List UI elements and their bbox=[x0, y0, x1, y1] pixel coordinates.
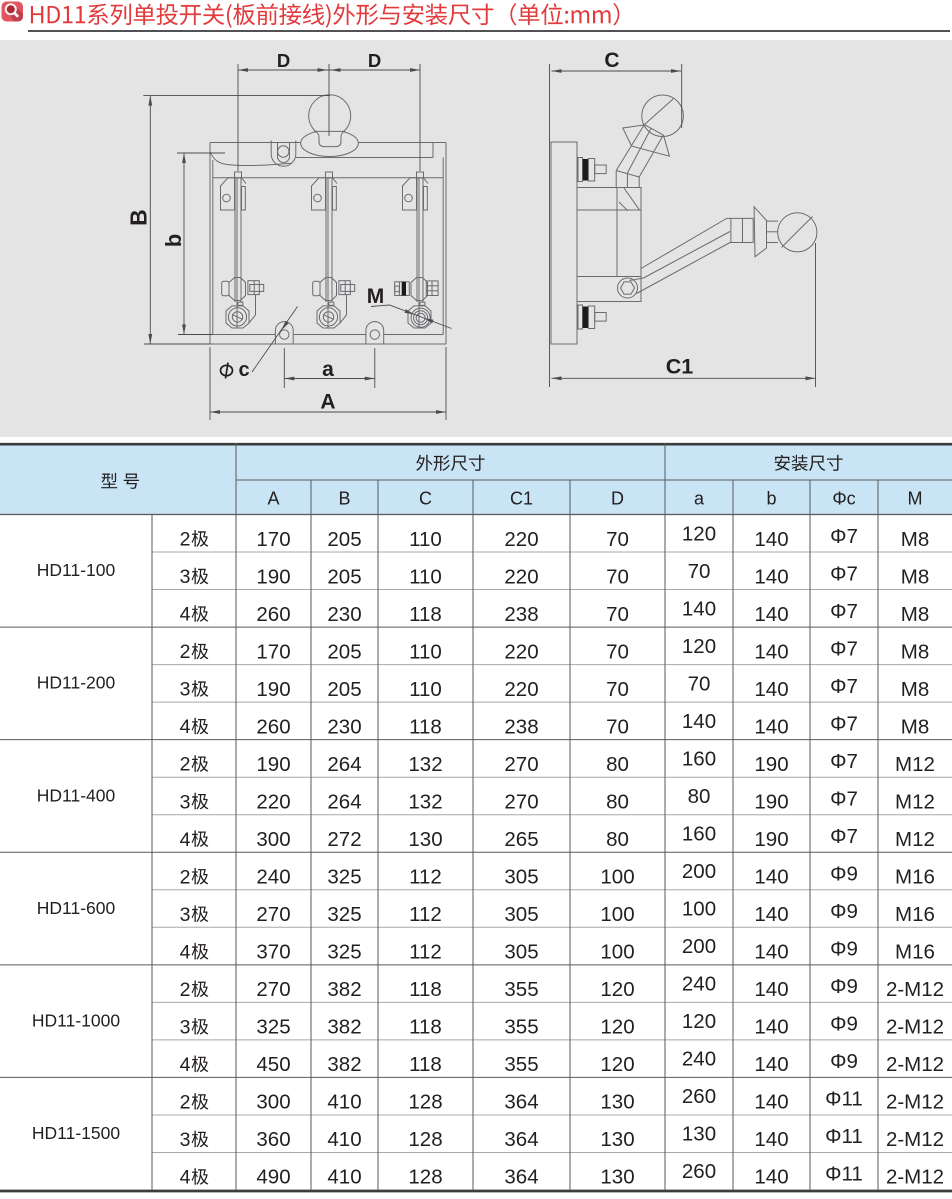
svg-text:Φ7: Φ7 bbox=[830, 525, 858, 548]
svg-text:a: a bbox=[322, 358, 334, 381]
svg-text:240: 240 bbox=[256, 866, 290, 889]
svg-text:M12: M12 bbox=[895, 790, 935, 813]
svg-text:130: 130 bbox=[600, 1091, 634, 1114]
svg-text:200: 200 bbox=[682, 860, 716, 883]
svg-text:205: 205 bbox=[327, 528, 361, 551]
svg-text:100: 100 bbox=[600, 903, 634, 926]
svg-text:HD11-1500: HD11-1500 bbox=[32, 1123, 120, 1143]
svg-text:Φ7: Φ7 bbox=[830, 712, 858, 735]
svg-text:325: 325 bbox=[327, 941, 361, 964]
svg-text:260: 260 bbox=[256, 715, 290, 738]
svg-text:D: D bbox=[277, 50, 290, 71]
svg-text:70: 70 bbox=[606, 715, 629, 738]
svg-text:130: 130 bbox=[600, 1166, 634, 1189]
svg-text:M16: M16 bbox=[895, 903, 935, 926]
svg-text:C1: C1 bbox=[666, 355, 694, 379]
svg-text:272: 272 bbox=[327, 828, 361, 851]
svg-text:70: 70 bbox=[606, 678, 629, 701]
svg-text:70: 70 bbox=[688, 672, 711, 695]
svg-text:Φ7: Φ7 bbox=[830, 637, 858, 660]
svg-text:190: 190 bbox=[754, 753, 788, 776]
svg-text:140: 140 bbox=[682, 710, 716, 733]
svg-text:120: 120 bbox=[682, 635, 716, 658]
svg-text:2-M12: 2-M12 bbox=[886, 1091, 944, 1114]
svg-text:220: 220 bbox=[504, 565, 538, 588]
svg-text:140: 140 bbox=[754, 715, 788, 738]
svg-text:300: 300 bbox=[256, 828, 290, 851]
svg-text:220: 220 bbox=[504, 678, 538, 701]
svg-text:4: 4 bbox=[180, 604, 191, 626]
svg-text:270: 270 bbox=[256, 978, 290, 1001]
svg-text:118: 118 bbox=[409, 978, 442, 1001]
svg-text:2: 2 bbox=[180, 754, 191, 776]
svg-text:120: 120 bbox=[600, 1016, 634, 1039]
svg-text:112: 112 bbox=[409, 903, 442, 926]
svg-text:Φ7: Φ7 bbox=[830, 787, 858, 810]
svg-text:b: b bbox=[766, 489, 776, 509]
svg-text:HD11-400: HD11-400 bbox=[37, 785, 116, 805]
svg-text:B: B bbox=[126, 209, 152, 226]
svg-text:110: 110 bbox=[409, 565, 442, 588]
svg-text:70: 70 bbox=[606, 603, 629, 626]
svg-text:M: M bbox=[367, 285, 385, 308]
svg-text:130: 130 bbox=[408, 828, 442, 851]
svg-text:M: M bbox=[908, 489, 923, 509]
svg-text:HD11-100: HD11-100 bbox=[37, 560, 116, 580]
svg-text:132: 132 bbox=[408, 790, 442, 813]
svg-text:B: B bbox=[338, 489, 350, 509]
svg-text:Φ9: Φ9 bbox=[830, 1050, 858, 1073]
svg-text:230: 230 bbox=[327, 603, 361, 626]
svg-text:325: 325 bbox=[256, 1016, 290, 1039]
svg-text:80: 80 bbox=[606, 753, 629, 776]
svg-text:140: 140 bbox=[754, 941, 788, 964]
svg-text:4: 4 bbox=[180, 1054, 191, 1076]
svg-text:112: 112 bbox=[409, 866, 442, 889]
svg-text:HD11-600: HD11-600 bbox=[37, 898, 116, 918]
svg-text:140: 140 bbox=[754, 640, 788, 663]
svg-text:132: 132 bbox=[408, 753, 442, 776]
svg-text:Φ7: Φ7 bbox=[830, 562, 858, 585]
svg-text:240: 240 bbox=[682, 973, 716, 996]
svg-text:364: 364 bbox=[504, 1091, 538, 1114]
svg-text:382: 382 bbox=[327, 1016, 361, 1039]
svg-text:260: 260 bbox=[682, 1160, 716, 1183]
svg-text:2: 2 bbox=[180, 979, 191, 1001]
svg-text:Φ7: Φ7 bbox=[830, 750, 858, 773]
svg-text:265: 265 bbox=[504, 828, 538, 851]
svg-text:118: 118 bbox=[409, 1053, 442, 1076]
svg-text:325: 325 bbox=[327, 903, 361, 926]
svg-text:3: 3 bbox=[180, 566, 191, 588]
svg-text:M8: M8 bbox=[901, 640, 929, 663]
svg-text:128: 128 bbox=[408, 1091, 442, 1114]
svg-text:382: 382 bbox=[327, 1053, 361, 1076]
svg-text:120: 120 bbox=[600, 978, 634, 1001]
svg-text:160: 160 bbox=[682, 747, 716, 770]
svg-text:M8: M8 bbox=[901, 715, 929, 738]
svg-text:355: 355 bbox=[504, 1016, 538, 1039]
svg-text:205: 205 bbox=[327, 678, 361, 701]
svg-text:140: 140 bbox=[754, 866, 788, 889]
svg-text:118: 118 bbox=[409, 715, 442, 738]
svg-text:140: 140 bbox=[754, 1053, 788, 1076]
svg-text:4: 4 bbox=[180, 1167, 191, 1189]
svg-text:M8: M8 bbox=[901, 565, 929, 588]
svg-text:220: 220 bbox=[504, 528, 538, 551]
svg-text:305: 305 bbox=[504, 866, 538, 889]
svg-text:b: b bbox=[161, 234, 186, 247]
svg-text:140: 140 bbox=[754, 678, 788, 701]
svg-text:118: 118 bbox=[409, 1016, 442, 1039]
svg-text:118: 118 bbox=[409, 603, 442, 626]
svg-text:2: 2 bbox=[180, 1091, 191, 1113]
svg-text:264: 264 bbox=[327, 790, 361, 813]
svg-text:140: 140 bbox=[754, 903, 788, 926]
svg-text:2-M12: 2-M12 bbox=[886, 1053, 944, 1076]
svg-text:382: 382 bbox=[327, 978, 361, 1001]
svg-text:360: 360 bbox=[256, 1128, 290, 1151]
svg-text:190: 190 bbox=[256, 565, 290, 588]
svg-text:120: 120 bbox=[600, 1053, 634, 1076]
svg-text:3: 3 bbox=[180, 679, 191, 701]
svg-text:100: 100 bbox=[600, 866, 634, 889]
svg-text:305: 305 bbox=[504, 903, 538, 926]
svg-text:3: 3 bbox=[180, 1129, 191, 1151]
svg-text:70: 70 bbox=[606, 528, 629, 551]
svg-text:A: A bbox=[320, 391, 335, 414]
svg-text:205: 205 bbox=[327, 640, 361, 663]
svg-text:190: 190 bbox=[256, 678, 290, 701]
svg-text:364: 364 bbox=[504, 1166, 538, 1189]
svg-text:128: 128 bbox=[408, 1166, 442, 1189]
svg-text:140: 140 bbox=[754, 1091, 788, 1114]
svg-text:80: 80 bbox=[688, 785, 711, 808]
svg-text:140: 140 bbox=[754, 1166, 788, 1189]
svg-text:170: 170 bbox=[256, 528, 290, 551]
svg-text:70: 70 bbox=[688, 560, 711, 583]
svg-text:Φ11: Φ11 bbox=[825, 1088, 863, 1111]
svg-text:140: 140 bbox=[754, 1016, 788, 1039]
svg-text:Φ9: Φ9 bbox=[830, 863, 858, 886]
svg-text:130: 130 bbox=[682, 1123, 716, 1146]
svg-text:240: 240 bbox=[682, 1048, 716, 1071]
svg-text:130: 130 bbox=[600, 1128, 634, 1151]
svg-text:220: 220 bbox=[504, 640, 538, 663]
svg-text:D: D bbox=[368, 50, 381, 71]
svg-text:M8: M8 bbox=[901, 603, 929, 626]
svg-text:a: a bbox=[694, 489, 705, 509]
svg-text:Φ7: Φ7 bbox=[830, 600, 858, 623]
svg-text:270: 270 bbox=[504, 753, 538, 776]
svg-text:2-M12: 2-M12 bbox=[886, 1128, 944, 1151]
svg-text:490: 490 bbox=[256, 1166, 290, 1189]
svg-text:110: 110 bbox=[409, 678, 442, 701]
svg-text:2-M12: 2-M12 bbox=[886, 1016, 944, 1039]
svg-text:2-M12: 2-M12 bbox=[886, 1166, 944, 1189]
svg-text:140: 140 bbox=[754, 978, 788, 1001]
svg-text:4: 4 bbox=[180, 829, 191, 851]
svg-text:70: 70 bbox=[606, 640, 629, 663]
svg-text:M8: M8 bbox=[901, 678, 929, 701]
svg-text:190: 190 bbox=[256, 753, 290, 776]
svg-text:4: 4 bbox=[180, 941, 191, 963]
svg-text:140: 140 bbox=[754, 1128, 788, 1151]
svg-text:110: 110 bbox=[409, 528, 442, 551]
svg-text:270: 270 bbox=[256, 903, 290, 926]
svg-text:100: 100 bbox=[600, 941, 634, 964]
svg-text:355: 355 bbox=[504, 978, 538, 1001]
svg-text:100: 100 bbox=[682, 898, 716, 921]
svg-text:140: 140 bbox=[754, 528, 788, 551]
svg-text:c: c bbox=[238, 359, 249, 381]
svg-text:3: 3 bbox=[180, 791, 191, 813]
svg-text:Φ9: Φ9 bbox=[830, 938, 858, 961]
svg-text:4: 4 bbox=[180, 716, 191, 738]
svg-text:205: 205 bbox=[327, 565, 361, 588]
svg-text:120: 120 bbox=[682, 522, 716, 545]
svg-text:Φ9: Φ9 bbox=[830, 975, 858, 998]
svg-text:140: 140 bbox=[682, 597, 716, 620]
svg-text:Φ7: Φ7 bbox=[830, 825, 858, 848]
svg-text:C1: C1 bbox=[510, 489, 533, 509]
svg-text:200: 200 bbox=[682, 935, 716, 958]
svg-text:80: 80 bbox=[606, 790, 629, 813]
svg-text:HD11-1000: HD11-1000 bbox=[32, 1010, 120, 1030]
svg-text:140: 140 bbox=[754, 603, 788, 626]
svg-text:3: 3 bbox=[180, 904, 191, 926]
svg-text:Φ9: Φ9 bbox=[830, 1013, 858, 1036]
svg-text:Φc: Φc bbox=[832, 489, 855, 509]
svg-text:190: 190 bbox=[754, 790, 788, 813]
svg-text:370: 370 bbox=[256, 941, 290, 964]
svg-text:128: 128 bbox=[408, 1128, 442, 1151]
svg-text:M16: M16 bbox=[895, 941, 935, 964]
svg-text:170: 170 bbox=[256, 640, 290, 663]
svg-text:D: D bbox=[611, 489, 624, 509]
svg-text:260: 260 bbox=[682, 1085, 716, 1108]
svg-text:264: 264 bbox=[327, 753, 361, 776]
svg-text:120: 120 bbox=[682, 1010, 716, 1033]
svg-text:M8: M8 bbox=[901, 528, 929, 551]
svg-text:110: 110 bbox=[409, 640, 442, 663]
svg-text:325: 325 bbox=[327, 866, 361, 889]
svg-text:2-M12: 2-M12 bbox=[886, 978, 944, 1001]
svg-text:410: 410 bbox=[327, 1091, 361, 1114]
svg-text:Φ7: Φ7 bbox=[830, 675, 858, 698]
svg-text:Φ11: Φ11 bbox=[825, 1163, 863, 1186]
svg-text:Φ11: Φ11 bbox=[825, 1125, 863, 1148]
svg-text:140: 140 bbox=[754, 565, 788, 588]
svg-text:112: 112 bbox=[409, 941, 442, 964]
svg-text:305: 305 bbox=[504, 941, 538, 964]
svg-text:238: 238 bbox=[504, 715, 538, 738]
svg-text:160: 160 bbox=[682, 822, 716, 845]
svg-text:70: 70 bbox=[606, 565, 629, 588]
svg-text:2: 2 bbox=[180, 641, 191, 663]
svg-text:2: 2 bbox=[180, 866, 191, 888]
svg-text:C: C bbox=[419, 489, 432, 509]
svg-text:270: 270 bbox=[504, 790, 538, 813]
svg-text:220: 220 bbox=[256, 790, 290, 813]
svg-text:364: 364 bbox=[504, 1128, 538, 1151]
svg-text:450: 450 bbox=[256, 1053, 290, 1076]
svg-text:M12: M12 bbox=[895, 828, 935, 851]
svg-text:410: 410 bbox=[327, 1128, 361, 1151]
svg-text:2: 2 bbox=[180, 529, 191, 551]
svg-text:230: 230 bbox=[327, 715, 361, 738]
svg-text:80: 80 bbox=[606, 828, 629, 851]
svg-text:260: 260 bbox=[256, 603, 290, 626]
svg-text:3: 3 bbox=[180, 1016, 191, 1038]
svg-text:A: A bbox=[267, 489, 279, 509]
svg-text:300: 300 bbox=[256, 1091, 290, 1114]
svg-text:Φ9: Φ9 bbox=[830, 900, 858, 923]
svg-text:410: 410 bbox=[327, 1166, 361, 1189]
svg-text:M12: M12 bbox=[895, 753, 935, 776]
svg-text:HD11-200: HD11-200 bbox=[37, 673, 116, 693]
svg-text:M16: M16 bbox=[895, 866, 935, 889]
svg-text:355: 355 bbox=[504, 1053, 538, 1076]
svg-text:190: 190 bbox=[754, 828, 788, 851]
svg-text:C: C bbox=[604, 49, 619, 72]
svg-text:238: 238 bbox=[504, 603, 538, 626]
